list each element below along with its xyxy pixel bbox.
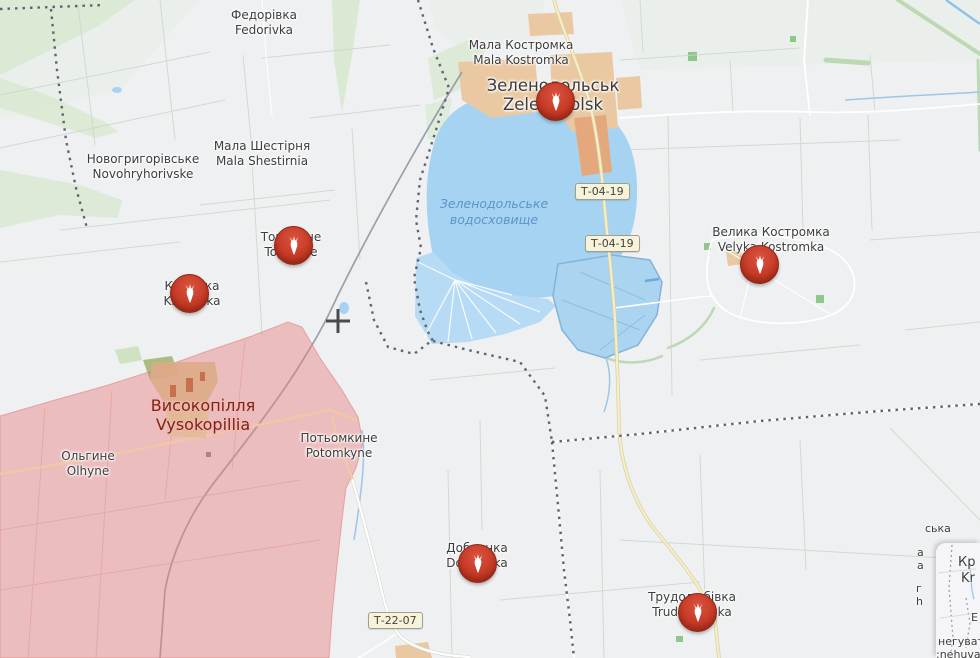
place-label-mala-shestirnia: Мала ШестірняMala Shestirnia (214, 139, 310, 168)
south-pond (553, 255, 662, 358)
minimap-city-label-en: Kr (961, 571, 975, 586)
tree-patches (676, 36, 824, 642)
clipped-label-fragment: гh (916, 582, 923, 608)
minimap-label-fragment: Е (971, 611, 978, 624)
crosshair-icon (325, 308, 351, 334)
clipped-label-fragment: ська (925, 522, 951, 535)
bomb-icon (687, 602, 709, 624)
place-label-mala-kostromka: Мала КостромкаMala Kostromka (469, 38, 574, 67)
minimap-bottom-label-uk: негуват (938, 635, 980, 648)
shelling-marker-kniazivka[interactable] (170, 274, 209, 313)
shelling-marker-dobrianka[interactable] (458, 544, 497, 583)
shelling-marker-trudoliubivka[interactable] (678, 593, 717, 632)
place-label-novohryhorivske: НовогригорівськеNovohryhorivske (87, 152, 199, 181)
bomb-icon (749, 254, 771, 276)
reservoir-label: Зеленодольськеводосховище (440, 196, 548, 228)
place-label-olhyne: ОльгинеOlhyne (61, 449, 115, 478)
road-shield-t0419-south: Т-04-19 (585, 235, 640, 252)
shelling-marker-velyka-kostromka[interactable] (740, 245, 779, 284)
road-shield-t2207: Т-22-07 (368, 612, 423, 629)
place-label-vysokopillia: ВисокопілляVysokopillia (151, 396, 255, 434)
road-shield-t0419-north: Т-04-19 (575, 183, 630, 200)
shelling-marker-topolyne[interactable] (274, 226, 313, 265)
place-label-potomkyne: ПотьомкинеPotomkyne (300, 431, 377, 460)
bomb-icon (179, 283, 201, 305)
bomb-icon (545, 91, 567, 113)
occupied-zone (0, 322, 363, 658)
minimap-city-label-uk: Кр (958, 555, 975, 570)
bomb-icon (283, 235, 305, 257)
shelling-marker-zelenodolsk[interactable] (536, 82, 575, 121)
place-label-fedorivka: ФедорівкаFedorivka (231, 8, 297, 37)
minimap-panel[interactable]: Кр Kr Е негуват :nehuvat (936, 543, 980, 658)
map-canvas[interactable]: ФедорівкаFedorivka Мала КостромкаMala Ko… (0, 0, 980, 658)
minimap-bottom-label-en: :nehuvat (936, 648, 980, 658)
clipped-label-fragment: аа (917, 546, 924, 572)
bomb-icon (467, 553, 489, 575)
